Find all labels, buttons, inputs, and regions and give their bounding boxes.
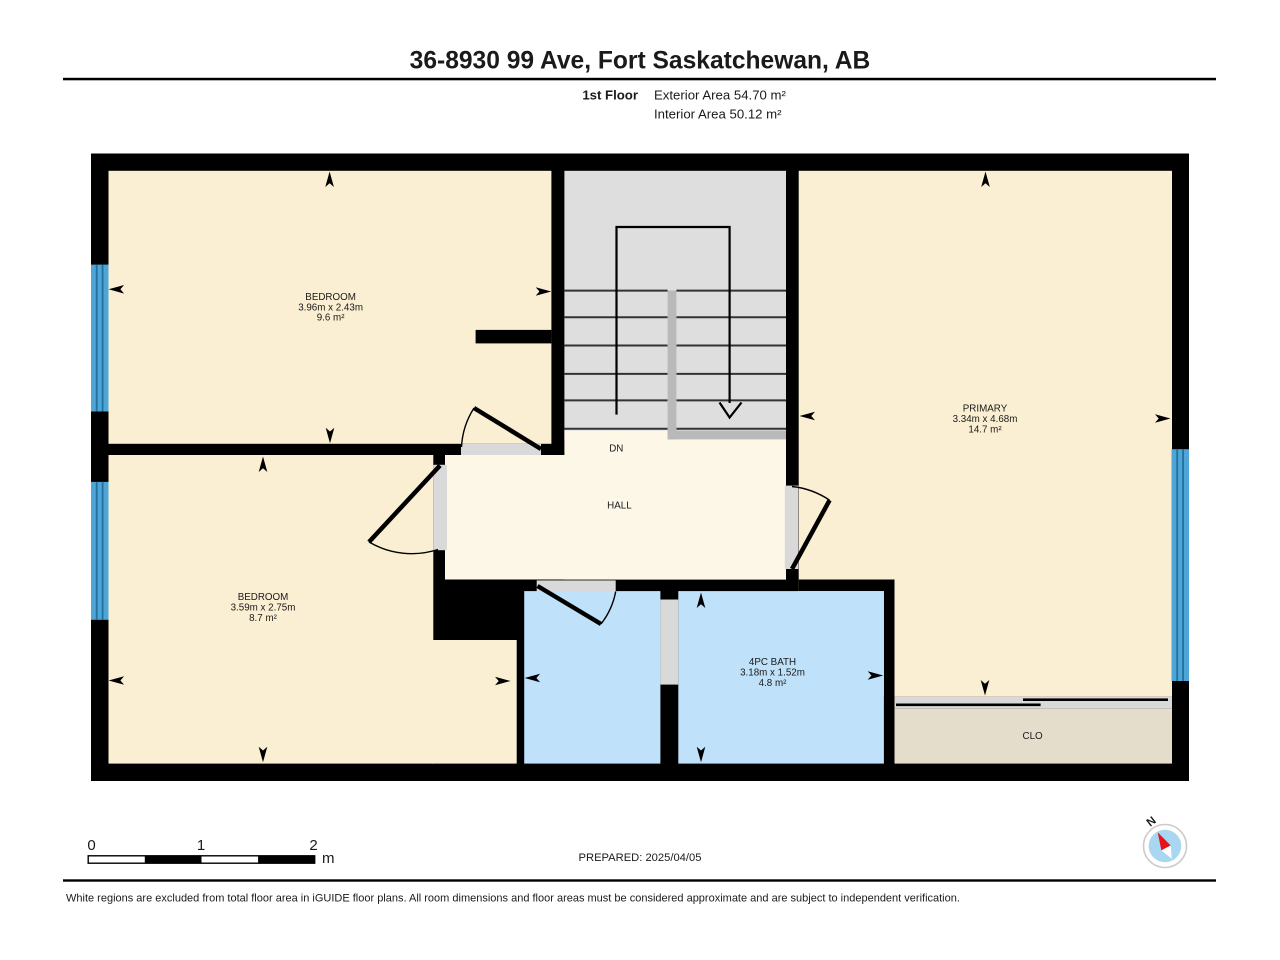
svg-text:36-8930 99 Ave, Fort Saskatche: 36-8930 99 Ave, Fort Saskatchewan, AB [410, 48, 871, 75]
svg-text:BEDROOM: BEDROOM [238, 592, 289, 603]
svg-text:PREPARED: 2025/04/05: PREPARED: 2025/04/05 [579, 852, 702, 864]
svg-text:14.7 m²: 14.7 m² [968, 425, 1002, 436]
svg-text:3.18m x 1.52m: 3.18m x 1.52m [740, 668, 805, 679]
svg-text:4PC BATH: 4PC BATH [749, 657, 796, 668]
svg-text:1: 1 [197, 837, 205, 854]
svg-text:9.6 m²: 9.6 m² [317, 313, 346, 324]
svg-text:PRIMARY: PRIMARY [963, 404, 1008, 415]
svg-text:m: m [322, 850, 335, 867]
svg-text:White regions are excluded fro: White regions are excluded from total fl… [66, 893, 960, 905]
svg-text:1st Floor: 1st Floor [582, 88, 638, 103]
svg-text:DN: DN [609, 443, 623, 454]
svg-text:Interior Area 50.12 m²: Interior Area 50.12 m² [654, 107, 782, 122]
svg-text:HALL: HALL [607, 501, 632, 512]
svg-text:3.34m x 4.68m: 3.34m x 4.68m [953, 414, 1018, 425]
svg-text:3.59m x 2.75m: 3.59m x 2.75m [231, 603, 296, 614]
svg-text:0: 0 [87, 837, 95, 854]
svg-text:8.7 m²: 8.7 m² [249, 613, 278, 624]
svg-text:2: 2 [309, 837, 317, 854]
svg-text:CLO: CLO [1023, 731, 1044, 742]
svg-text:4.8 m²: 4.8 m² [759, 678, 788, 689]
svg-text:Exterior Area 54.70 m²: Exterior Area 54.70 m² [654, 88, 787, 103]
